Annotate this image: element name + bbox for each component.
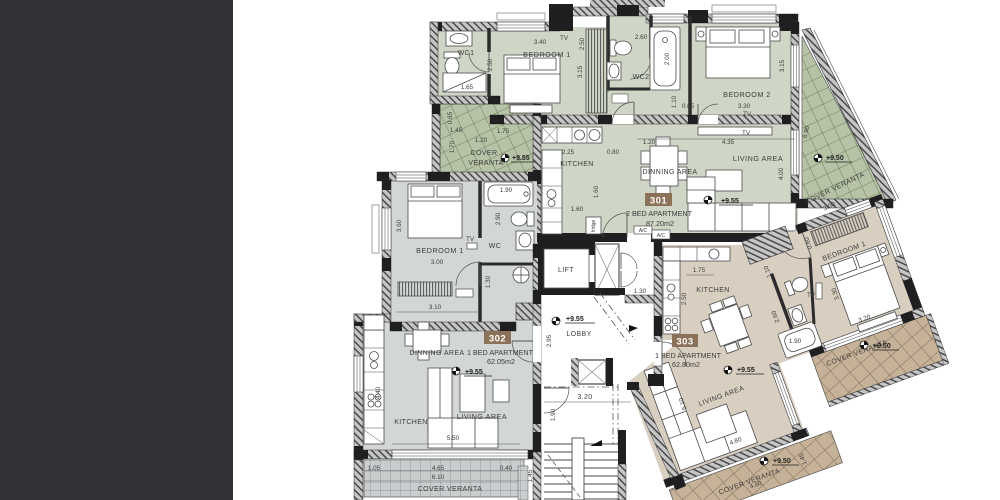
svg-text:+9.50: +9.50	[826, 155, 844, 162]
svg-text:1 BED APARTMENT: 1 BED APARTMENT	[467, 348, 534, 357]
svg-text:LOBBY: LOBBY	[566, 331, 591, 338]
svg-text:1.45: 1.45	[450, 127, 463, 134]
svg-text:+9.55: +9.55	[512, 155, 530, 162]
svg-text:1.75: 1.75	[497, 128, 510, 135]
svg-text:1.30: 1.30	[485, 275, 492, 288]
svg-text:1.20: 1.20	[643, 139, 656, 146]
svg-text:BEDROOM 1: BEDROOM 1	[523, 50, 571, 59]
svg-text:3.15: 3.15	[779, 59, 786, 72]
svg-text:KITCHEN: KITCHEN	[394, 419, 428, 426]
svg-text:BEDROOM 1: BEDROOM 1	[416, 246, 464, 255]
svg-text:1.20: 1.20	[475, 137, 488, 144]
svg-text:3.30: 3.30	[738, 103, 751, 110]
svg-text:KITCHEN: KITCHEN	[560, 161, 594, 168]
svg-text:3.00: 3.00	[431, 259, 444, 266]
svg-text:2.50: 2.50	[579, 37, 586, 50]
svg-text:0.40: 0.40	[500, 465, 513, 472]
svg-text:1.75: 1.75	[693, 267, 706, 274]
svg-text:2.60: 2.60	[635, 34, 648, 41]
svg-text:2.90: 2.90	[495, 212, 502, 225]
svg-text:302: 302	[489, 334, 506, 345]
svg-text:VERANTA: VERANTA	[468, 160, 503, 167]
svg-text:1.90: 1.90	[500, 187, 513, 194]
svg-text:+9.50: +9.50	[873, 343, 891, 350]
svg-text:2.50: 2.50	[487, 58, 494, 71]
svg-text:KITCHEN: KITCHEN	[696, 287, 730, 294]
svg-text:4.35: 4.35	[722, 139, 735, 146]
svg-text:303: 303	[676, 337, 693, 348]
svg-text:301: 301	[650, 196, 668, 207]
svg-text:62.05m2: 62.05m2	[487, 357, 515, 366]
svg-text:WC2: WC2	[633, 74, 650, 81]
svg-text:1.70: 1.70	[449, 140, 456, 153]
svg-text:1.05: 1.05	[368, 465, 381, 472]
svg-text:TV: TV	[742, 130, 751, 137]
svg-text:1.60: 1.60	[571, 206, 584, 213]
svg-text:DINNING AREA: DINNING AREA	[410, 350, 465, 357]
svg-text:TV: TV	[743, 111, 752, 118]
svg-text:1.60: 1.60	[593, 185, 600, 198]
svg-text:A/C: A/C	[639, 228, 648, 234]
svg-text:2.50: 2.50	[681, 292, 688, 305]
svg-text:WC: WC	[489, 243, 501, 250]
svg-text:0.65: 0.65	[682, 103, 695, 110]
svg-text:4.65: 4.65	[432, 465, 445, 472]
svg-text:1.65: 1.65	[461, 84, 474, 91]
svg-text:87.20m2: 87.20m2	[646, 219, 674, 228]
svg-text:1.90: 1.90	[550, 408, 557, 421]
svg-text:2.95: 2.95	[546, 334, 553, 347]
svg-text:+9.50: +9.50	[773, 458, 791, 465]
svg-text:fridge: fridge	[591, 220, 597, 233]
svg-text:1.30: 1.30	[634, 288, 647, 295]
svg-text:0.65: 0.65	[447, 111, 454, 124]
svg-text:3.20: 3.20	[577, 394, 592, 401]
svg-text:+9.55: +9.55	[566, 316, 584, 323]
svg-text:3.40: 3.40	[534, 39, 547, 46]
svg-text:TV: TV	[466, 236, 475, 243]
svg-text:COVER: COVER	[471, 150, 498, 157]
svg-text:TV: TV	[560, 35, 569, 42]
svg-text:A/C: A/C	[657, 233, 666, 239]
svg-text:2.25: 2.25	[562, 149, 575, 156]
svg-text:62.80m2: 62.80m2	[672, 360, 700, 369]
svg-text:5.50: 5.50	[447, 435, 460, 442]
svg-text:2 BED APARTMENT: 2 BED APARTMENT	[626, 209, 693, 218]
svg-text:DINNING AREA: DINNING AREA	[643, 169, 698, 176]
svg-text:COVER VERANTA: COVER VERANTA	[418, 486, 483, 493]
svg-text:LIVING AREA: LIVING AREA	[733, 154, 783, 163]
svg-text:3.15: 3.15	[577, 65, 584, 78]
svg-text:3.10: 3.10	[429, 304, 442, 311]
svg-text:0.80: 0.80	[607, 149, 620, 156]
svg-text:WC1: WC1	[458, 50, 475, 57]
svg-text:2.00: 2.00	[664, 52, 671, 65]
svg-text:4.00: 4.00	[778, 167, 785, 180]
svg-text:1.90: 1.90	[789, 338, 802, 345]
svg-text:+9.55: +9.55	[465, 369, 483, 376]
svg-text:LIVING AREA: LIVING AREA	[457, 412, 507, 421]
svg-text:6.10: 6.10	[432, 474, 445, 481]
svg-text:1.10: 1.10	[671, 95, 678, 108]
svg-text:3.60: 3.60	[396, 219, 403, 232]
svg-text:BEDROOM 2: BEDROOM 2	[723, 90, 771, 99]
svg-text:LIFT: LIFT	[558, 267, 574, 274]
svg-text:TV: TV	[807, 292, 816, 299]
svg-text:1 BED APARTMENT: 1 BED APARTMENT	[655, 351, 722, 360]
svg-text:4.40: 4.40	[375, 386, 382, 399]
svg-text:+9.55: +9.55	[721, 198, 739, 205]
svg-text:+9.55: +9.55	[737, 367, 755, 374]
